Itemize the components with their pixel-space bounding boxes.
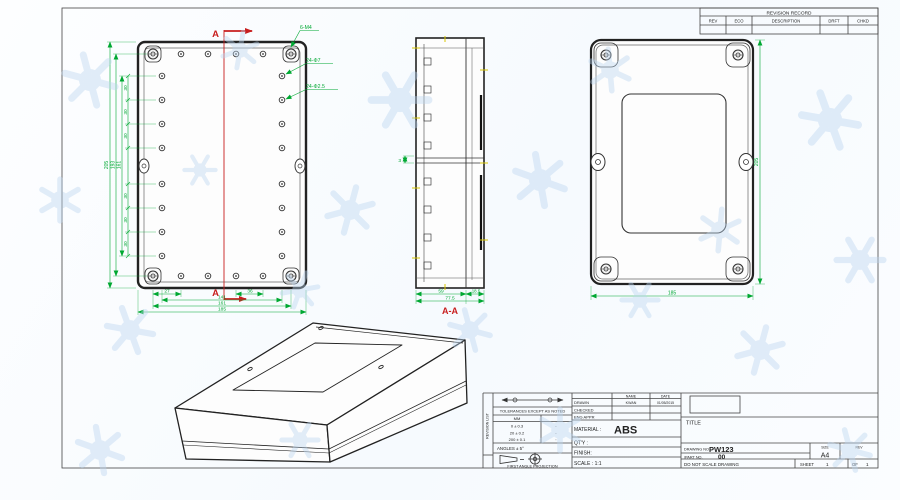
revision-record-table: REVISION RECORD REV ECO DESCRIPTION DRFT… [700,8,878,34]
material-label: MATERIAL : [574,427,601,433]
projection-label: FIRST ANGLE PROJECTION [507,464,557,468]
of-label: OF [852,462,858,467]
eng-appr-label: ENG APPR [574,414,595,419]
isometric-view [175,323,467,462]
sheet-label: SHEET [800,462,814,467]
dim-base-height: 205 [754,158,760,167]
do-not-scale-note: DO NOT SCALE DRAWING [684,462,739,467]
dim-base-width: 185 [668,290,677,296]
tolerance-block: TOLERANCES EXCEPT AS NOTED MM 0 ± 0.3 20… [493,393,572,468]
col-description: DESCRIPTION [772,19,801,24]
section-view-label: A-A [442,306,458,316]
base-view [591,40,753,284]
part-no-label: /PART NO. [684,455,703,459]
col-rev: REV [709,19,718,24]
dim-depth-total: 77.5 [445,295,455,301]
dim-seg-30: 30 [123,193,129,199]
col-eco: ECO [734,19,744,24]
side-strip-label: REVISION LIST [486,412,490,439]
drawing-no-label: DRAWING NO. [684,448,710,452]
title-label: TITLE [686,421,701,427]
drawing-sheet: REVISION RECORD REV ECO DESCRIPTION DRFT… [0,0,900,500]
tolerance-row: 0 ± 0.3 [511,424,524,429]
section-view-a-a [412,36,488,290]
size-value: A4 [821,453,830,460]
title-block: REVISION LIST TOLERANCES EXCEPT AS NOTED… [483,393,878,468]
dim-step: 36 [247,288,253,294]
dim-seg-30: 30 [123,133,129,139]
section-letter-top: A [212,29,219,40]
cover-dims-bottom: 27 36 141 161 185 [138,288,306,315]
dim-width-total: 185 [218,306,226,312]
cover-view [138,42,306,288]
tolerance-dot: · [555,431,557,437]
callout-d7: 24-Φ7 [306,58,321,64]
tolerance-row: 200 ± 0.1 [509,437,526,442]
qty-label: QT'Y : [574,441,588,447]
tolerance-dot: · [555,424,557,430]
drawn-name: KWAN [626,401,637,405]
dim-width-screws: 161 [218,300,226,306]
rev-label: REV [856,446,864,450]
drawn-label: DRAWN [574,400,589,405]
angles-tolerance: ANGLES ± 5° [497,446,524,451]
finish-label: FINISH: [574,451,592,457]
col-chkd: CHKD [857,19,869,24]
of-number: 1 [866,462,869,467]
tolerance-heading: TOLERANCES EXCEPT AS NOTED [500,409,566,414]
scale-label: SCALE : 1:1 [574,461,602,467]
dim-depth-main: 59 [438,288,444,294]
drawing-id-block: TITLE DRAWING NO. PW123 /PART NO. 00 SIZ… [681,396,878,468]
checked-label: CHECKED [574,407,594,412]
callout-m4: 6-M4 [300,25,312,31]
dim-seg-30: 30 [123,241,129,247]
dim-seg-30: 30 [123,85,129,91]
drawn-date: 01/05/2015 [657,401,674,405]
dim-height-holes: 161 [117,161,123,170]
tolerance-row: 20 ± 0.2 [510,430,525,435]
name-header: NAME [626,394,637,398]
tolerance-unit: MM [514,416,521,421]
col-drft: DRFT [828,19,840,24]
info-block: NAME DATE DRAWN KWAN 01/05/2015 CHECKED … [572,393,681,468]
size-label: SIZE [821,446,829,450]
part-no-value: 00 [718,454,726,461]
cad-canvas: REVISION RECORD REV ECO DESCRIPTION DRFT… [0,0,900,500]
dim-edge: 27 [164,288,170,294]
callout-d25: 24-Φ2.5 [306,84,325,90]
dim-depth-lid: 18.5 [472,288,481,293]
material-value: ABS [614,425,637,437]
dim-height-total: 205 [104,161,110,170]
dim-seg-30: 30 [123,217,129,223]
dim-wall: 3 [398,158,401,164]
sheet-number: 1 [826,462,829,467]
dim-seg-30: 30 [123,109,129,115]
dim-width-inner: 141 [218,294,226,300]
logo-box [690,396,740,413]
drawing-no-value: PW123 [709,445,734,454]
dimensioning-symbol-icon [502,398,563,402]
revision-table-title: REVISION RECORD [766,10,812,16]
date-header: DATE [661,394,671,398]
